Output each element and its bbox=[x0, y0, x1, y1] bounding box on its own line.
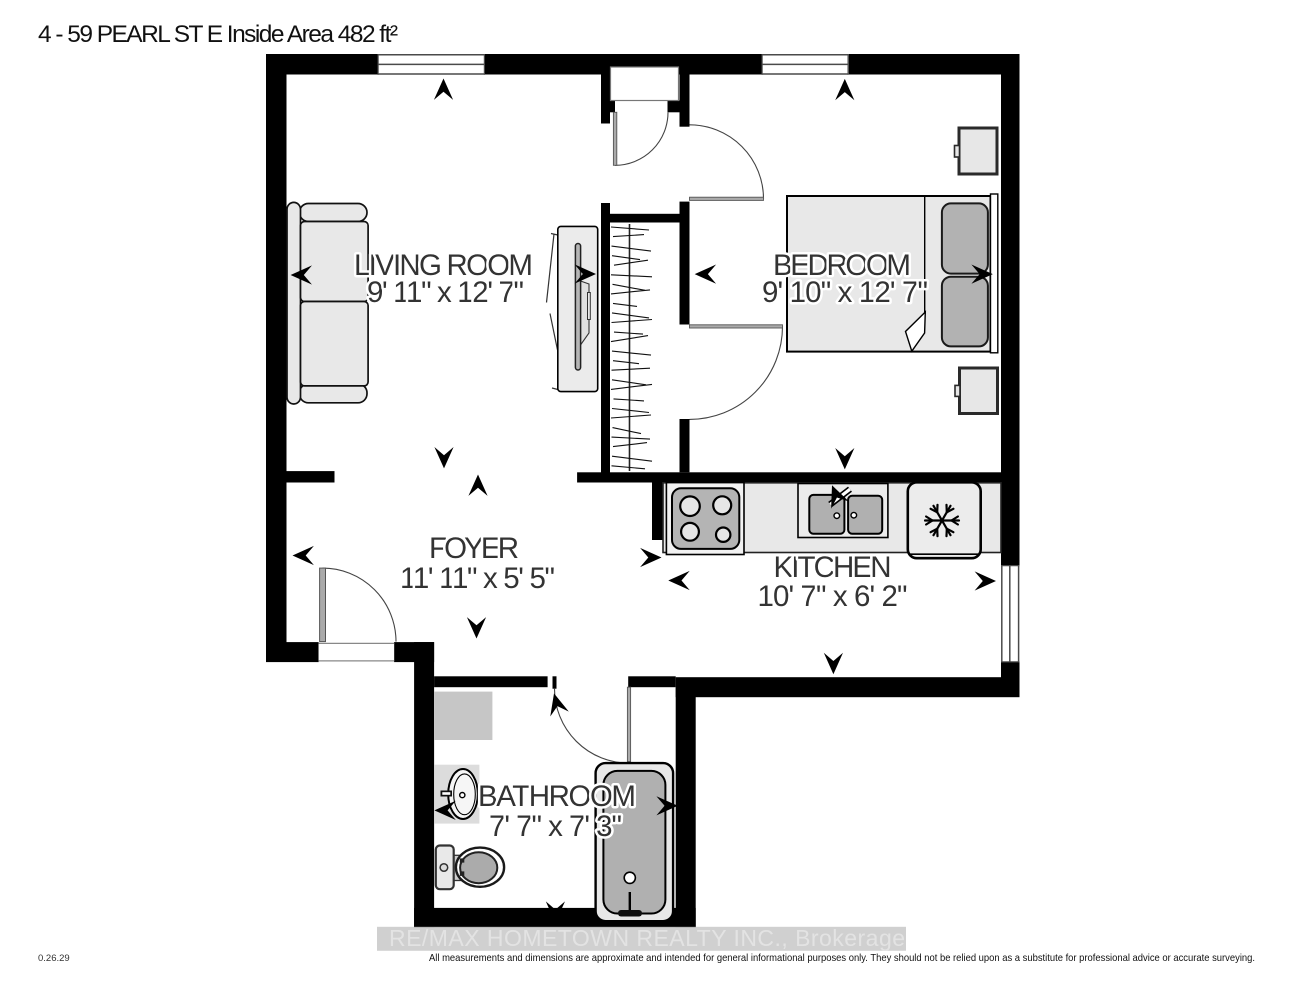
svg-text:RE/MAX HOMETOWN REALTY INC., B: RE/MAX HOMETOWN REALTY INC., Brokerage bbox=[389, 925, 905, 951]
svg-text:9' 10" x 12' 7": 9' 10" x 12' 7" bbox=[762, 276, 928, 309]
svg-text:FOYER: FOYER bbox=[429, 532, 519, 565]
svg-text:BATHROOM: BATHROOM bbox=[478, 780, 636, 813]
svg-text:9' 11" x 12' 7": 9' 11" x 12' 7" bbox=[367, 276, 524, 309]
svg-text:7' 7" x 7' 3": 7' 7" x 7' 3" bbox=[489, 810, 622, 843]
svg-text:0.26.29: 0.26.29 bbox=[38, 953, 70, 964]
svg-text:11' 11" x 5' 5": 11' 11" x 5' 5" bbox=[400, 562, 555, 595]
svg-text:4 - 59 PEARL ST E Inside Area: 4 - 59 PEARL ST E Inside Area 482 ft² bbox=[38, 21, 398, 48]
svg-text:10' 7" x 6' 2": 10' 7" x 6' 2" bbox=[758, 580, 908, 613]
svg-text:All measurements and dimension: All measurements and dimensions are appr… bbox=[429, 953, 1255, 964]
